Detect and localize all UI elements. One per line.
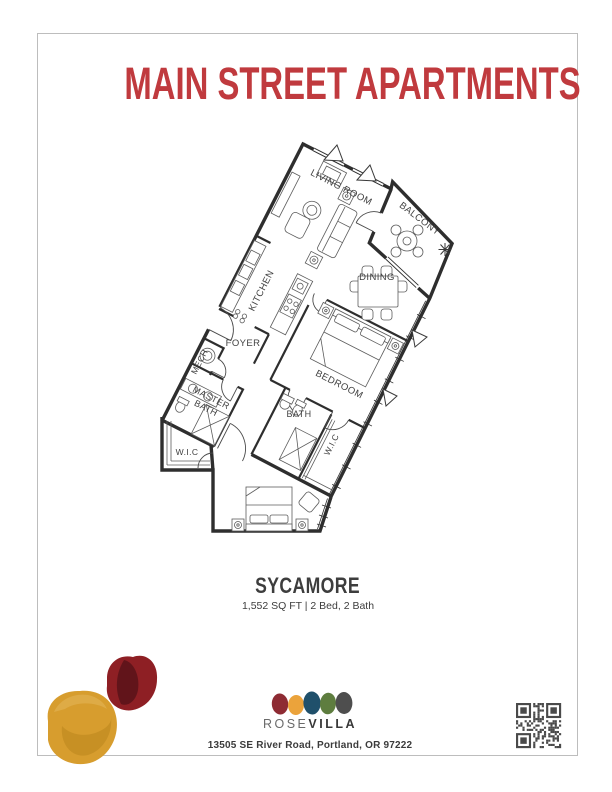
logo-petal-gold: [287, 695, 304, 716]
flyer-page: { "document": { "title": "MAIN STREET AP…: [0, 0, 612, 792]
footer-graphics: [0, 0, 612, 792]
logo-petal-red: [271, 693, 289, 715]
logo-petal-gray: [335, 692, 353, 715]
address: 13505 SE River Road, Portland, OR 97222: [40, 740, 580, 751]
brand-rose: ROSE: [263, 717, 308, 731]
logo-petal-navy: [303, 691, 321, 715]
logo-petal-green: [319, 692, 336, 715]
brand-wordmark: ROSEVILLA: [40, 717, 580, 731]
brand-villa: VILLA: [308, 717, 357, 731]
rosevilla-logo-marks: [271, 691, 353, 715]
